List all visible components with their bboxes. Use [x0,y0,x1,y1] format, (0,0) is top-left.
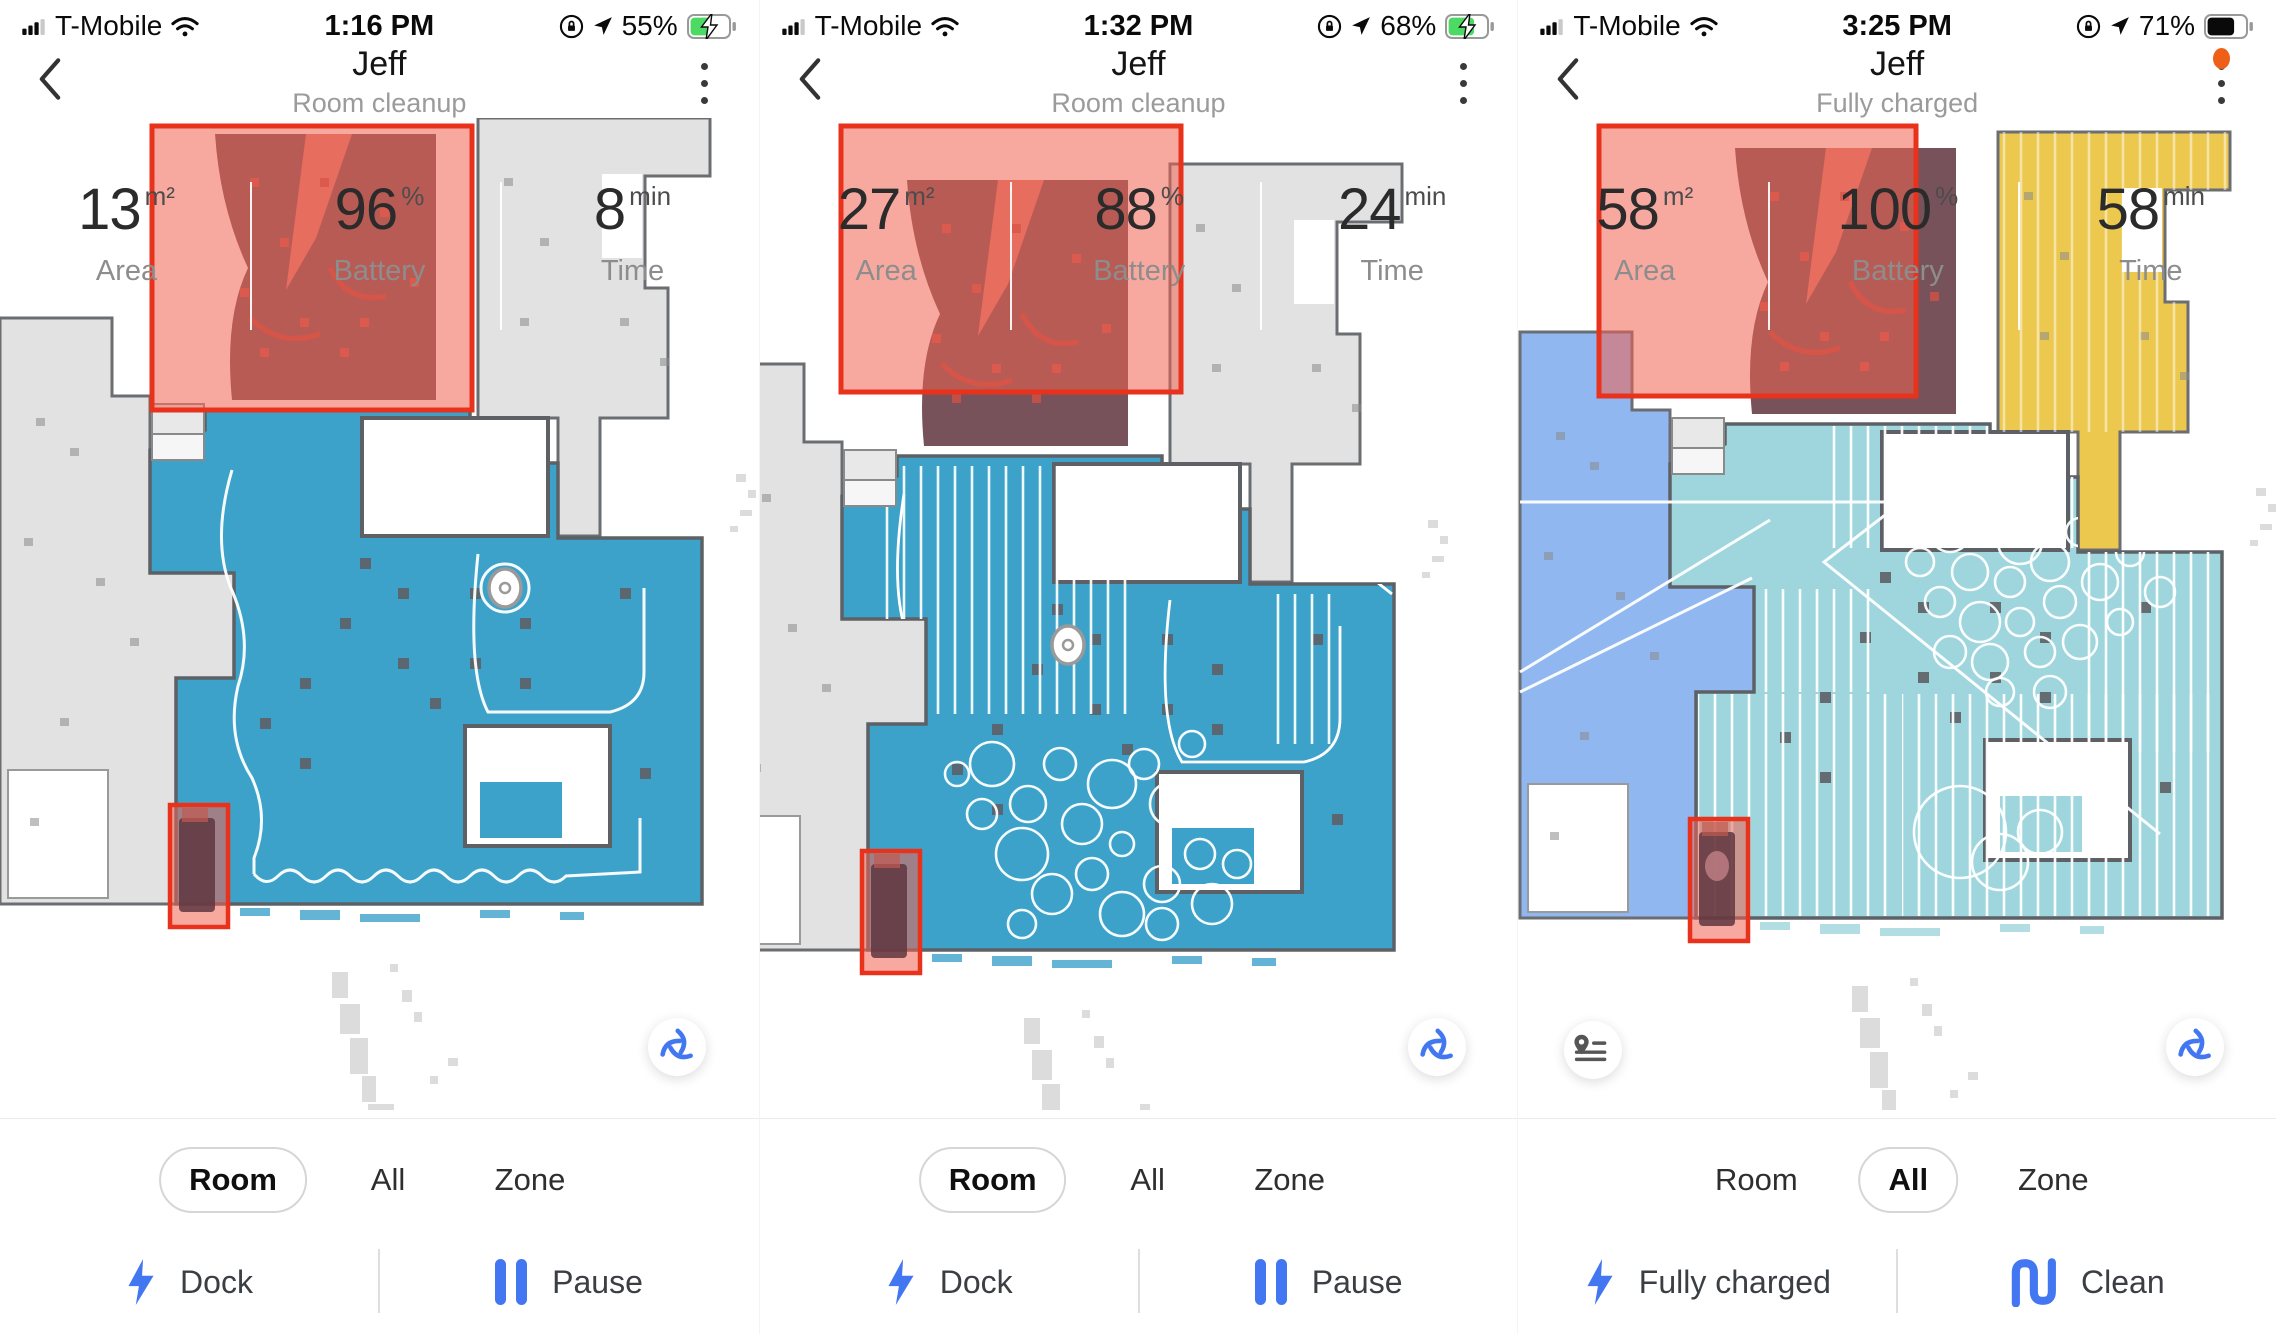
map-rooms-button[interactable] [1564,1021,1622,1079]
nav-header: Jeff Fully charged [1518,44,2276,120]
cell-signal-icon [1540,18,1564,35]
mode-tabs: Room All Zone [1518,1141,2276,1219]
status-subtitle: Fully charged [1598,88,2196,119]
status-time: 1:32 PM [1084,10,1194,43]
pause-icon [1254,1259,1288,1305]
cell-signal-icon [782,18,806,35]
carrier-label: T-Mobile [55,10,162,42]
page-title: Jeff [80,44,679,85]
status-bar: T-Mobile 1:32 PM 68% [760,0,1518,44]
lightning-icon [886,1259,916,1305]
cell-signal-icon [22,18,46,35]
pause-icon [494,1259,528,1305]
page-title: Jeff [840,44,1438,85]
fan-speed-icon [657,1027,697,1067]
status-time: 3:25 PM [1842,10,1952,43]
location-arrow-icon [1351,16,1371,36]
bottom-control-bar: Room All Zone Fully charged Clean [1518,1118,2276,1334]
bottom-control-bar: Room All Zone Dock Pause [760,1118,1518,1334]
tab-zone[interactable]: Zone [1254,1162,1325,1198]
triple-screenshot-strip: T-Mobile 1:16 PM 55% Jeff Room cleanup 1… [0,0,2276,1334]
back-button[interactable] [1556,58,1580,100]
tab-room[interactable]: Room [919,1147,1067,1213]
dock-button[interactable]: Dock [760,1247,1139,1317]
phone-screenshot-3: T-Mobile 3:25 PM 71% Jeff Fully charged [1517,0,2276,1334]
orientation-lock-icon [559,14,584,39]
pause-button[interactable]: Pause [379,1247,758,1317]
dock-status-button[interactable]: Fully charged [1518,1247,1897,1317]
more-menu-button[interactable] [1441,52,1485,114]
back-button[interactable] [38,58,62,100]
battery-charging-icon [1445,14,1495,39]
location-arrow-icon [2110,16,2130,36]
map-pin-list-icon [1572,1033,1614,1067]
status-time: 1:16 PM [325,10,435,43]
tab-all[interactable]: All [1130,1162,1164,1198]
nav-header: Jeff Room cleanup [0,44,759,120]
tab-room[interactable]: Room [1715,1162,1798,1198]
map-canvas[interactable] [760,118,1518,1110]
page-title: Jeff [1598,44,2196,85]
status-subtitle: Room cleanup [840,88,1438,119]
clean-button[interactable]: Clean [1897,1247,2276,1317]
wifi-icon [171,16,199,37]
pause-button[interactable]: Pause [1139,1247,1518,1317]
tab-zone[interactable]: Zone [2018,1162,2089,1198]
status-bar: T-Mobile 1:16 PM 55% [0,0,759,44]
fan-speed-icon [2175,1027,2215,1067]
tab-room[interactable]: Room [159,1147,307,1213]
battery-icon [2204,14,2254,39]
carrier-label: T-Mobile [815,10,922,42]
phone-screenshot-2: T-Mobile 1:32 PM 68% Jeff Room cleanup 2… [759,0,1518,1334]
fan-speed-button[interactable] [648,1018,706,1076]
phone-screenshot-1: T-Mobile 1:16 PM 55% Jeff Room cleanup 1… [0,0,759,1334]
orientation-lock-icon [2076,14,2101,39]
dock-button[interactable]: Dock [0,1247,379,1317]
notification-dot [2213,48,2230,69]
map-canvas[interactable] [1518,118,2276,1110]
nav-header: Jeff Room cleanup [760,44,1518,120]
fan-speed-icon [1417,1027,1457,1067]
clean-path-icon [2009,1257,2057,1307]
lightning-icon [126,1259,156,1305]
battery-percent: 55% [622,10,678,42]
tab-all[interactable]: All [371,1162,405,1198]
tab-all[interactable]: All [1859,1147,1959,1213]
mode-tabs: Room All Zone [0,1141,759,1219]
status-bar: T-Mobile 3:25 PM 71% [1518,0,2276,44]
battery-percent: 71% [2139,10,2195,42]
lightning-icon [1585,1259,1615,1305]
fan-speed-button[interactable] [1408,1018,1466,1076]
bottom-control-bar: Room All Zone Dock Pause [0,1118,759,1334]
mode-tabs: Room All Zone [760,1141,1518,1219]
status-subtitle: Room cleanup [80,88,679,119]
carrier-label: T-Mobile [1573,10,1680,42]
location-arrow-icon [593,16,613,36]
map-canvas[interactable] [0,118,759,1110]
tab-zone[interactable]: Zone [495,1162,566,1198]
fan-speed-button[interactable] [2166,1018,2224,1076]
back-button[interactable] [798,58,822,100]
more-menu-button[interactable] [2200,52,2244,114]
wifi-icon [931,16,959,37]
more-menu-button[interactable] [683,52,727,114]
orientation-lock-icon [1317,14,1342,39]
wifi-icon [1690,16,1718,37]
battery-percent: 68% [1380,10,1436,42]
battery-charging-icon [687,14,737,39]
